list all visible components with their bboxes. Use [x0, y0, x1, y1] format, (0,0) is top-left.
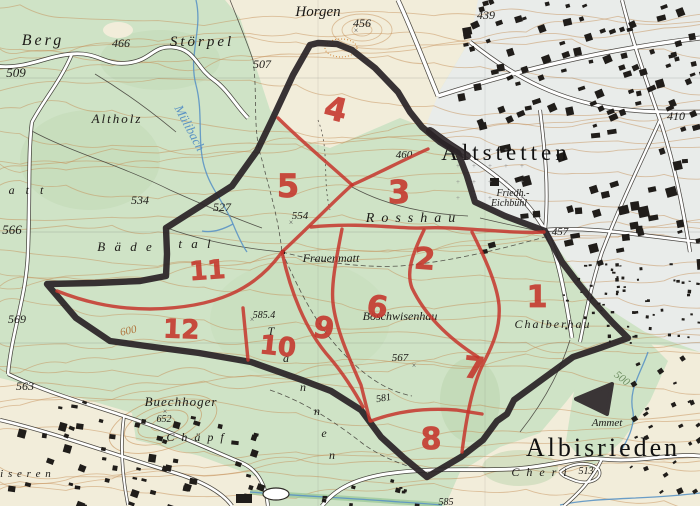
- building: [619, 265, 621, 266]
- building: [616, 291, 619, 294]
- map-label: 585: [439, 497, 454, 506]
- building: [590, 285, 593, 287]
- building: [607, 325, 610, 327]
- zone-number: 12: [163, 314, 200, 345]
- building: [141, 419, 146, 424]
- building: [112, 465, 118, 471]
- map-canvas: ++++++++++++++++++++×××××Horgen456439Ber…: [0, 0, 700, 506]
- building: [623, 286, 626, 288]
- map-label: Ammet: [591, 417, 623, 429]
- building: [676, 219, 684, 228]
- building: [457, 93, 465, 102]
- building: [75, 485, 81, 489]
- building: [623, 289, 626, 292]
- building: [670, 263, 673, 265]
- building: [520, 213, 529, 219]
- map-label: t a l: [178, 236, 213, 251]
- map-label: C h ä p f: [166, 430, 225, 444]
- building: [592, 312, 595, 314]
- building: [636, 91, 642, 97]
- zone-number: 7: [462, 350, 486, 387]
- map-label: 554: [292, 210, 309, 222]
- building: [148, 454, 156, 463]
- building: [630, 201, 640, 211]
- map-label: a t t: [9, 183, 48, 197]
- map-label: 456: [353, 16, 371, 30]
- building: [473, 83, 482, 91]
- building: [635, 311, 638, 314]
- zone-number: 10: [258, 330, 297, 364]
- building: [646, 315, 649, 318]
- building: [653, 314, 655, 316]
- building: [687, 336, 689, 338]
- map-label: C h e r i: [511, 465, 568, 479]
- map-label: 513: [579, 466, 594, 477]
- map-label: 457: [552, 226, 569, 238]
- spot-height-mark: ×: [412, 361, 417, 370]
- map-label: Berg: [22, 32, 65, 49]
- map-label: Störpel: [170, 34, 234, 50]
- map-label: B ä d e: [97, 239, 154, 254]
- building: [687, 294, 690, 297]
- building: [668, 334, 671, 337]
- building: [323, 496, 328, 499]
- building: [575, 207, 582, 214]
- map-label: Chalberhau: [514, 317, 591, 331]
- building: [639, 267, 642, 270]
- building: [632, 336, 635, 338]
- building: [231, 440, 239, 445]
- map-label: Horgen: [294, 4, 340, 20]
- building: [688, 33, 696, 41]
- map-label: 509: [6, 65, 26, 80]
- building: [605, 292, 608, 294]
- map-label: 652: [157, 414, 172, 425]
- map-label: Rosshau: [365, 211, 462, 226]
- building: [644, 212, 649, 216]
- zone-number: 2: [413, 241, 436, 277]
- map-label: 566: [2, 222, 22, 237]
- map-label: 563: [16, 379, 34, 393]
- zone-number: 11: [188, 255, 226, 287]
- map-label: Frauenmatt: [302, 251, 360, 265]
- building: [615, 263, 619, 267]
- cemetery-cross: +: [488, 178, 492, 186]
- map-label: e: [321, 426, 327, 440]
- building: [402, 491, 406, 494]
- map-label: n: [329, 448, 335, 462]
- zone-number: 5: [277, 167, 299, 205]
- map-label: Albisrieden: [526, 433, 680, 462]
- building: [566, 300, 569, 302]
- map-label: 527: [213, 200, 232, 214]
- building: [682, 159, 688, 164]
- map-label: 439: [477, 8, 495, 22]
- building: [608, 335, 611, 339]
- map-label: 585.4: [253, 310, 276, 321]
- building: [591, 133, 600, 139]
- building: [563, 294, 565, 296]
- building: [612, 272, 616, 274]
- sports-track: [263, 488, 289, 500]
- building: [217, 424, 222, 429]
- map-label: 569: [8, 312, 26, 326]
- building: [622, 234, 630, 241]
- map-label: 507: [253, 57, 272, 71]
- map-label: 466: [112, 36, 130, 50]
- building: [696, 283, 700, 286]
- building: [645, 300, 648, 302]
- building: [621, 276, 624, 279]
- building: [611, 311, 615, 313]
- building: [611, 268, 614, 271]
- building: [682, 318, 685, 320]
- map-label: 534: [131, 193, 149, 207]
- zone-number: 1: [527, 280, 548, 315]
- building: [605, 263, 607, 265]
- building: [649, 327, 652, 330]
- building: [8, 486, 16, 493]
- building: [109, 434, 116, 439]
- cemetery-cross: +: [504, 178, 508, 186]
- map-label: Buechhoger: [145, 394, 218, 409]
- topographic-map-screenshot: ++++++++++++++++++++×××××Horgen456439Ber…: [0, 0, 700, 506]
- building: [42, 433, 47, 438]
- zone-number: 8: [421, 422, 442, 457]
- cemetery-cross: +: [520, 178, 524, 186]
- building: [661, 309, 664, 312]
- building: [533, 211, 541, 218]
- building: [682, 282, 685, 284]
- map-label: Eichbühl: [490, 198, 527, 209]
- building: [616, 276, 618, 278]
- building: [637, 279, 639, 281]
- building: [76, 423, 84, 430]
- building: [690, 313, 693, 315]
- building: [627, 326, 629, 328]
- cemetery-cross: +: [456, 178, 460, 186]
- building: [602, 304, 605, 306]
- building-large: [236, 494, 252, 503]
- building: [676, 280, 680, 283]
- building: [632, 311, 636, 314]
- building: [173, 459, 179, 464]
- building: [617, 286, 620, 288]
- map-label: n: [314, 404, 320, 418]
- map-label: 567: [392, 352, 409, 364]
- map-label: Altholz: [91, 111, 143, 126]
- cemetery-cross: +: [456, 194, 460, 202]
- building: [615, 278, 619, 282]
- building: [584, 265, 587, 267]
- zone-number: 3: [388, 173, 410, 211]
- building: [688, 290, 692, 294]
- map-label: 410: [667, 109, 685, 123]
- building: [636, 226, 643, 234]
- building: [673, 279, 675, 281]
- building: [589, 264, 592, 266]
- building: [678, 335, 680, 337]
- building: [630, 342, 632, 344]
- map-label: i s e r e n: [0, 468, 52, 480]
